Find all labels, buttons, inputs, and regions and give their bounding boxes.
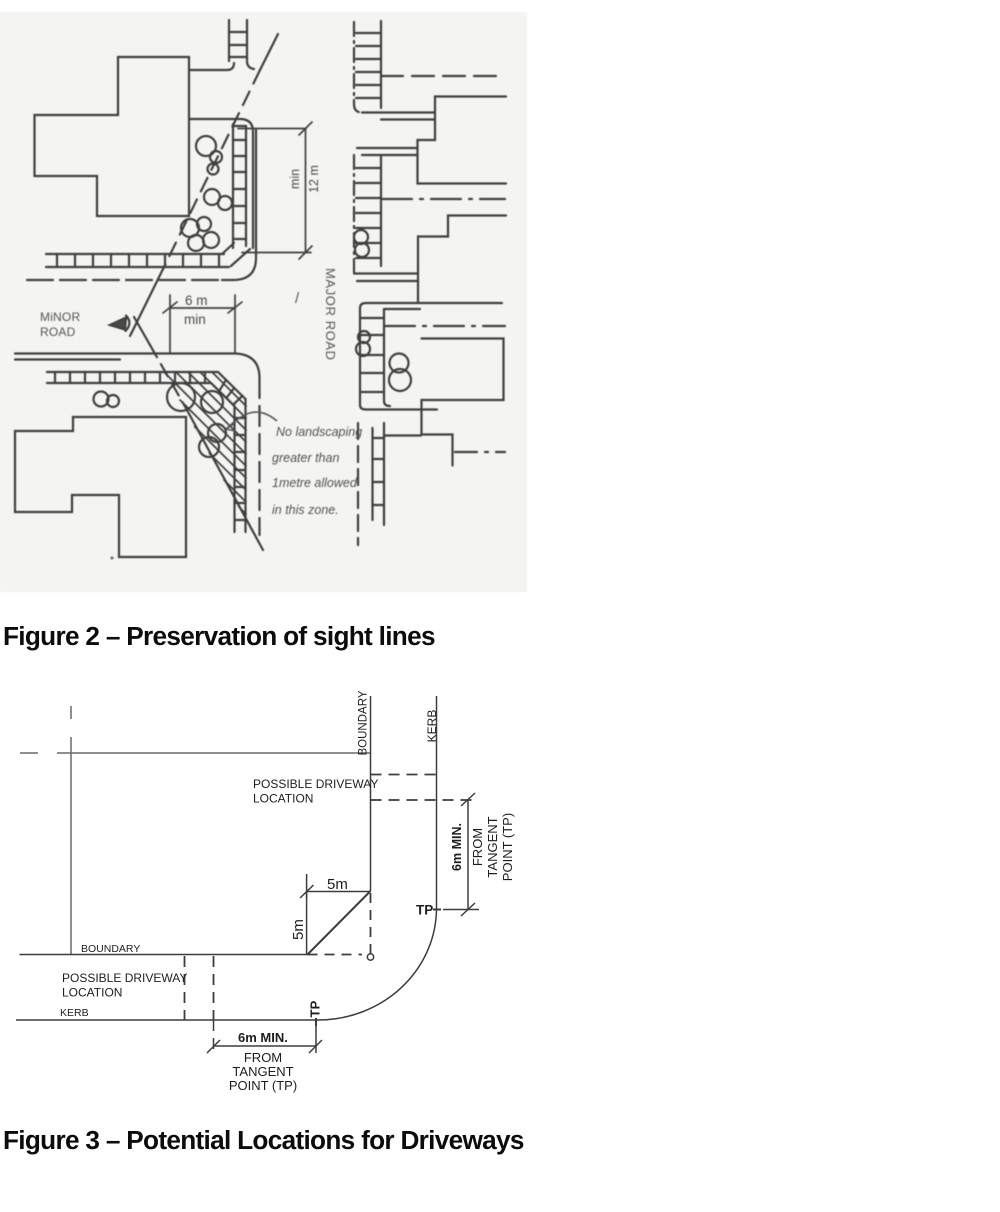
svg-text:POINT (TP): POINT (TP) (229, 1078, 297, 1093)
svg-text:TANGENT: TANGENT (485, 816, 500, 877)
svg-text:ROAD: ROAD (40, 325, 76, 339)
svg-text:LOCATION: LOCATION (253, 792, 313, 806)
svg-text:1metre allowed: 1metre allowed (272, 476, 358, 490)
svg-text:greater than: greater than (272, 451, 339, 465)
svg-text:in this zone.: in this zone. (272, 503, 339, 517)
svg-text:TP: TP (308, 1000, 323, 1017)
svg-text:6m MIN.: 6m MIN. (238, 1030, 288, 1045)
svg-text:LOCATION: LOCATION (62, 986, 122, 1000)
svg-text:min: min (288, 169, 302, 189)
svg-text:KERB: KERB (60, 1007, 89, 1019)
svg-text:min: min (184, 312, 206, 327)
svg-text:BOUNDARY: BOUNDARY (81, 943, 140, 955)
svg-text:MAJOR ROAD: MAJOR ROAD (323, 268, 338, 361)
svg-text:POSSIBLE DRIVEWAY: POSSIBLE DRIVEWAY (62, 971, 187, 985)
svg-text:BOUNDARY: BOUNDARY (358, 690, 370, 755)
svg-text:5m: 5m (290, 919, 307, 940)
svg-text:FROM: FROM (244, 1050, 282, 1065)
svg-text:6m MIN.: 6m MIN. (450, 823, 464, 871)
svg-text:KERB: KERB (425, 710, 439, 743)
svg-text:TANGENT: TANGENT (232, 1064, 293, 1079)
svg-text:FROM: FROM (470, 828, 485, 866)
svg-text:POINT (TP): POINT (TP) (500, 813, 515, 881)
svg-text:5m: 5m (327, 876, 348, 893)
svg-text:MiNOR: MiNOR (40, 310, 80, 324)
svg-text:POSSIBLE DRIVEWAY: POSSIBLE DRIVEWAY (253, 777, 378, 791)
svg-text:12 m: 12 m (307, 165, 321, 193)
svg-text:6 m: 6 m (185, 293, 208, 308)
svg-text:TP: TP (416, 903, 433, 918)
svg-text:No landscaping: No landscaping (276, 425, 362, 439)
